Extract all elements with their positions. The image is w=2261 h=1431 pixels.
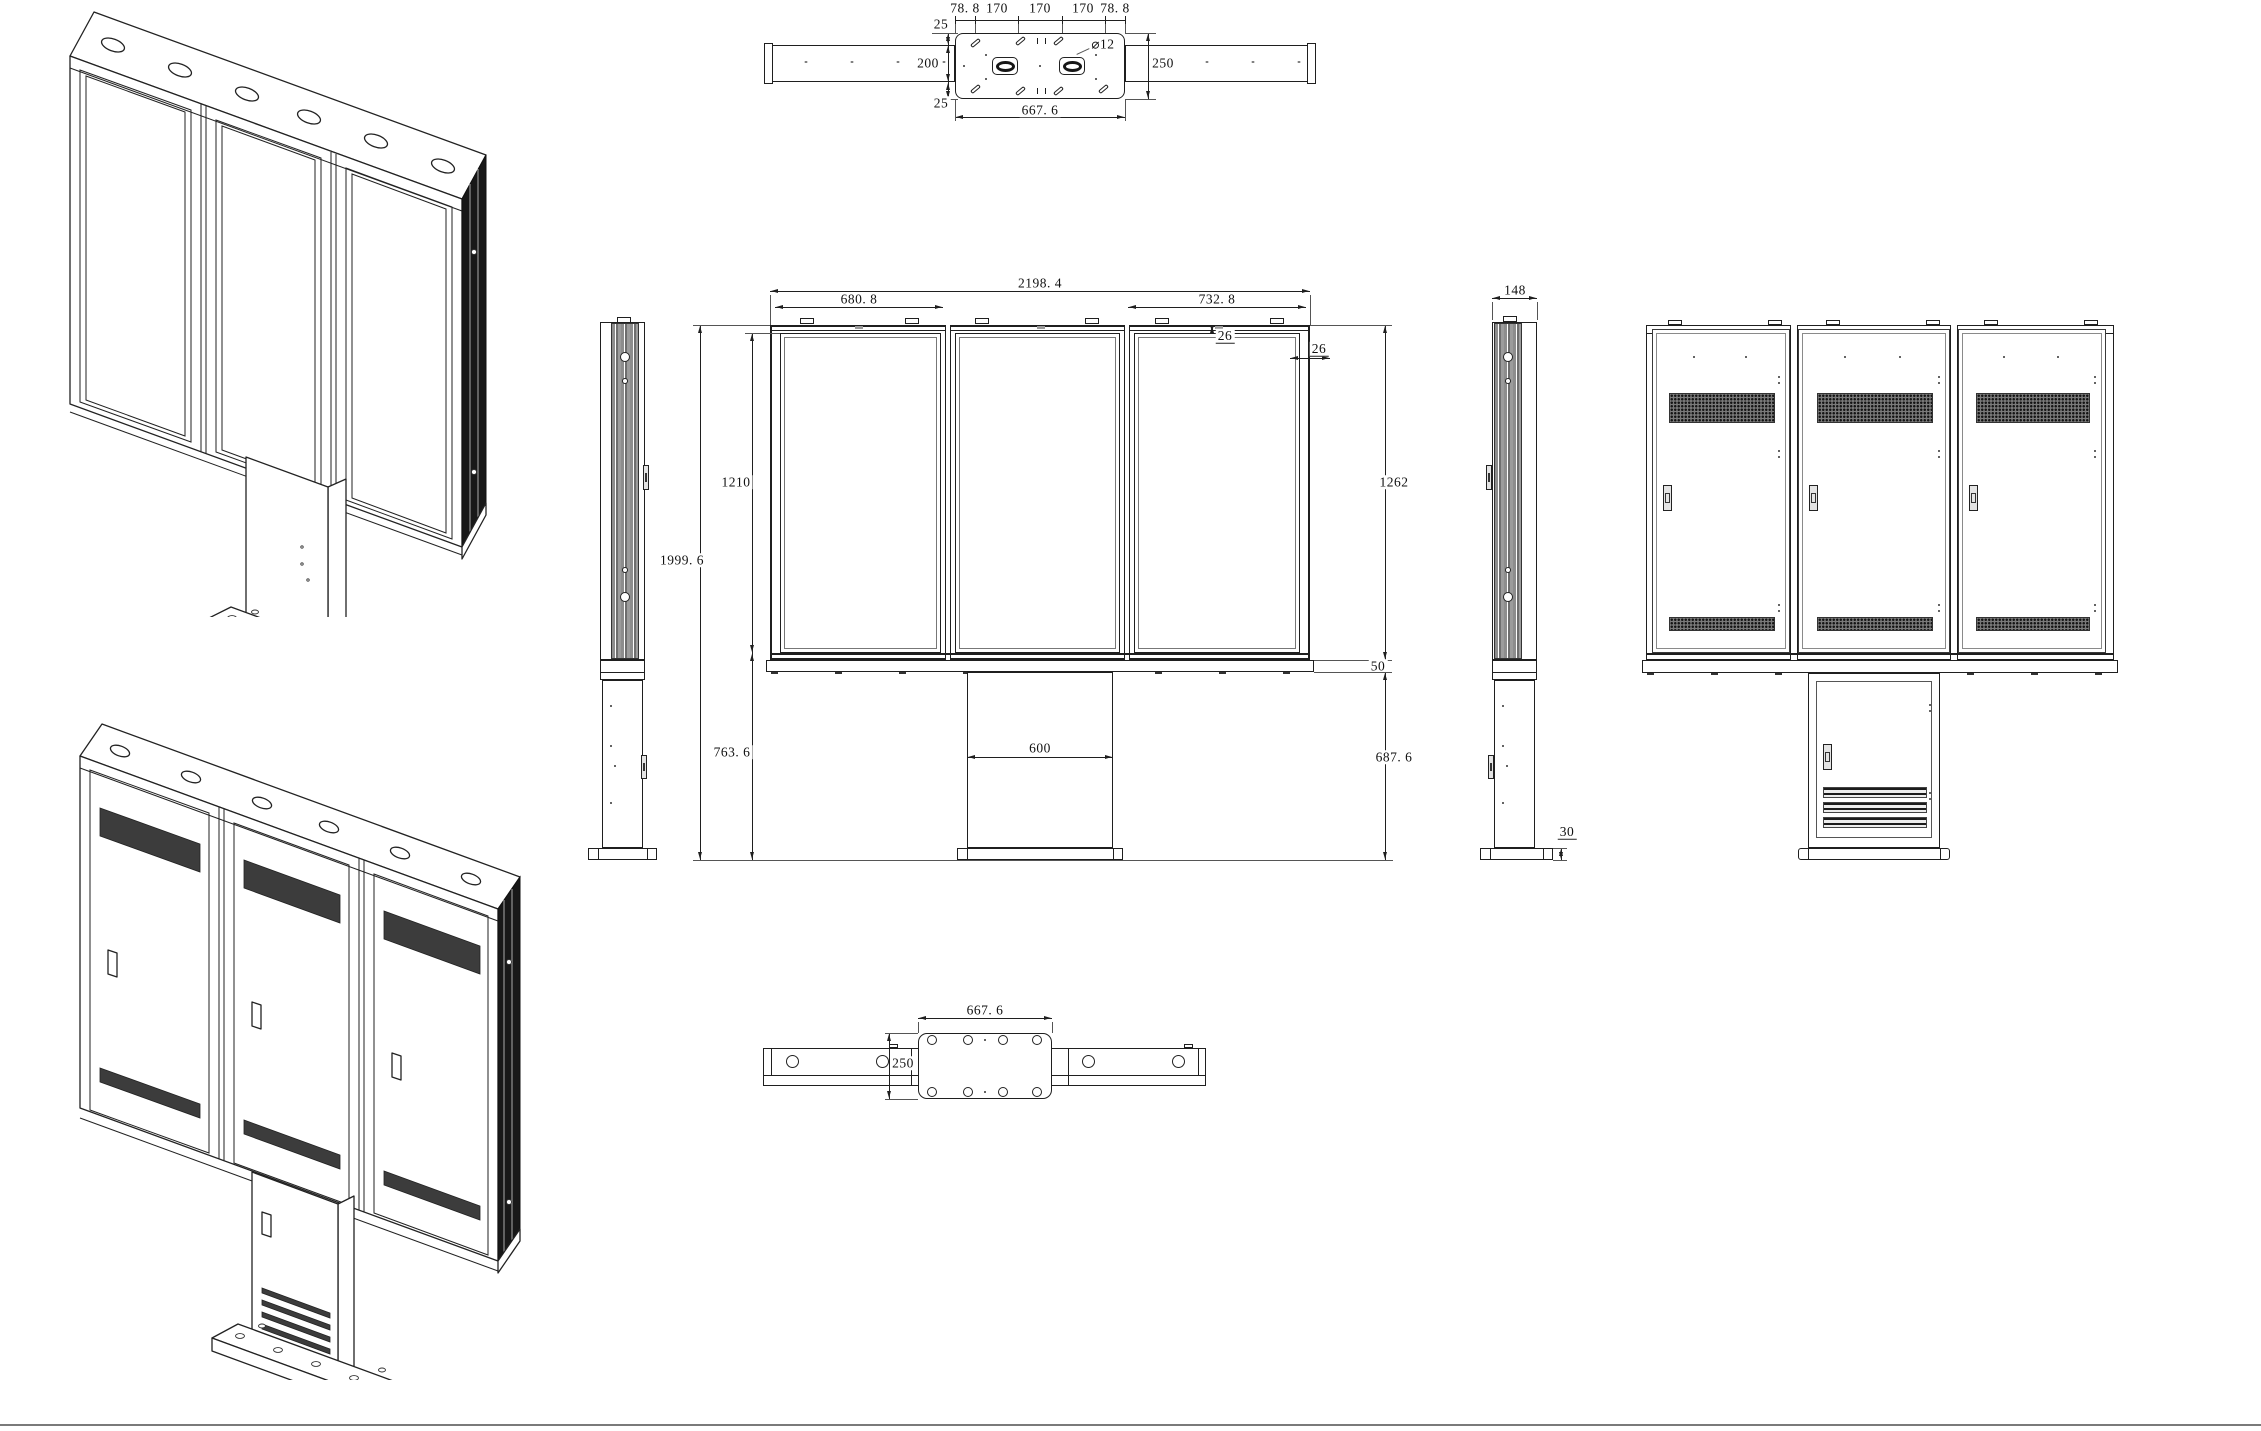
plate-dot: [985, 78, 987, 80]
iso-rear-door-latch-1: [108, 950, 117, 977]
rear-column-louver: [1823, 802, 1927, 813]
base-notch: [598, 848, 599, 860]
iso-front-heatsink-hole: [472, 470, 477, 475]
rear-top-tab: [1768, 320, 1782, 325]
panel-top-tab: [1155, 318, 1169, 324]
iso-rear-base-hole: [379, 1368, 386, 1372]
side-hole: [1503, 352, 1513, 362]
iso-front-column-dot: [307, 579, 309, 581]
ext-line: [1125, 24, 1126, 33]
dim-base-height: 30: [1558, 825, 1577, 840]
side-column: [1494, 680, 1535, 848]
dim-line-side-margin: [1290, 358, 1330, 359]
bar-hole: [876, 1055, 889, 1068]
base-notch: [1940, 848, 1941, 860]
top-view: 78. 8 170 170 170 78. 8 25 200 25 250 66…: [760, 0, 1340, 140]
hinge-dot: [2094, 376, 2096, 378]
rear-mullion-2: [1950, 325, 1958, 660]
column-dot: [1506, 765, 1508, 767]
ext-line: [1018, 24, 1019, 33]
dim-line-plate-width: [918, 1018, 1052, 1019]
plate-dot: [1095, 78, 1097, 80]
panel-mullion-1: [945, 325, 951, 660]
plate-dot: [963, 65, 965, 67]
sheet-border-line: [0, 1424, 2261, 1426]
stand-base: [957, 848, 1123, 860]
side-latch: [643, 465, 649, 490]
rear-door-2: [1798, 329, 1950, 653]
iso-rear-column-latch: [262, 1212, 271, 1237]
panel-top-tab: [1270, 318, 1284, 324]
plate-hole: [1032, 1087, 1042, 1097]
dim-lower-height: 763. 6: [712, 745, 753, 759]
cabinet-bottom-rail: [770, 653, 1310, 655]
door-dot: [1745, 356, 1747, 358]
panel-top-tab: [1085, 318, 1099, 324]
side-ledge-line: [600, 672, 645, 673]
bar-hole: [1172, 1055, 1185, 1068]
rear-stand-base: [1798, 848, 1950, 860]
dim-line-left-panel: [775, 307, 943, 308]
hinge-dot: [1778, 456, 1780, 458]
hinge-dot: [1778, 450, 1780, 452]
side-ledge-band: [600, 660, 645, 680]
ext-line: [1125, 99, 1156, 100]
rear-stand-column: [1808, 673, 1940, 848]
plate-hole: [927, 1087, 937, 1097]
side-ledge-band: [1492, 660, 1537, 680]
plate-dot: [984, 1039, 986, 1041]
panel-top-clip: [1037, 326, 1045, 329]
ext-line: [975, 24, 976, 33]
side-heatsink-fins: [1494, 323, 1522, 659]
column-dot: [614, 765, 616, 767]
ground-ext-line: [693, 860, 1393, 861]
iso-front-heatsink-end: [462, 155, 486, 547]
ext-line: [1553, 860, 1567, 861]
door-dot: [2003, 356, 2005, 358]
dim-stand-height: 687. 6: [1374, 750, 1415, 764]
rear-mullion-1: [1790, 325, 1798, 660]
dim-line-column-width: [967, 757, 1113, 758]
rear-door-3: [1958, 329, 2106, 653]
dim-plate-width: 667. 6: [965, 1003, 1006, 1017]
panel-top-tab: [975, 318, 989, 324]
top-bar-endcap-left: [764, 43, 773, 84]
bottom-bar-endline: [771, 1048, 772, 1075]
door-dot: [1844, 356, 1846, 358]
iso-rear-door-latch-3: [392, 1053, 401, 1080]
ext-line: [1492, 302, 1493, 320]
plate-dot: [985, 54, 987, 56]
panel-top-tab: [905, 318, 919, 324]
iso-front-column-side: [328, 479, 346, 617]
hinge-dot: [2094, 450, 2096, 452]
base-notch: [1808, 848, 1809, 860]
dim-plate-depth: 250: [1150, 56, 1176, 70]
door-dot: [1693, 356, 1695, 358]
base-notch: [647, 848, 648, 860]
dim-tick: [955, 16, 956, 24]
column-dot: [610, 802, 612, 804]
screen-panel-1: [780, 333, 941, 653]
screen-panel-2: [955, 333, 1120, 653]
ext-line: [693, 325, 770, 326]
bottom-bar-divider: [1068, 1048, 1069, 1086]
ext-line: [885, 1099, 918, 1100]
hinge-dot: [1929, 798, 1931, 800]
dim-line-right-panel: [1128, 307, 1306, 308]
iso-front-heatsink-hole: [472, 250, 477, 255]
side-ledge-line: [1492, 672, 1537, 673]
column-dot: [1502, 745, 1504, 747]
dim-line-overall-height: [700, 325, 701, 860]
ext-line: [1310, 295, 1311, 325]
plate-dot: [1039, 65, 1041, 67]
hinge-dot: [1938, 610, 1940, 612]
door-top-vent: [1976, 393, 2090, 423]
hinge-dot: [1778, 376, 1780, 378]
dim-hole-dia: ⌀12: [1089, 37, 1116, 51]
bar-hole: [786, 1055, 799, 1068]
hinge-dot: [1938, 376, 1940, 378]
iso-rear-heatsink-hole: [507, 960, 512, 965]
base-notch: [1543, 848, 1544, 860]
iso-rear-base-hole: [350, 1376, 359, 1380]
base-notch: [1490, 848, 1491, 860]
base-notch: [1113, 848, 1114, 860]
ext-line: [1052, 1022, 1053, 1033]
ext-line: [932, 33, 958, 34]
dim-tick: [1125, 16, 1126, 24]
ext-line: [1105, 24, 1106, 33]
bottom-bar-bump: [1184, 1044, 1193, 1048]
hinge-dot: [1778, 610, 1780, 612]
iso-front-base-hole: [228, 616, 237, 617]
panel-top-clip: [855, 326, 863, 329]
iso-front-column-dot: [301, 563, 303, 565]
hinge-dot: [1938, 456, 1940, 458]
dim-line-top-margin: [1212, 325, 1213, 333]
side-heatsink-fins: [611, 323, 639, 659]
screen-panel-3: [1134, 333, 1300, 653]
side-hole: [620, 352, 630, 362]
top-bar-endcap-right: [1307, 43, 1316, 84]
side-hole: [1503, 592, 1513, 602]
iso-rear-base-hole: [274, 1348, 283, 1353]
column-dot: [1502, 802, 1504, 804]
dim-spacing-2: 170: [984, 1, 1010, 15]
stand-column: [967, 672, 1113, 848]
ext-line: [1314, 672, 1392, 673]
plate-hole: [998, 1087, 1008, 1097]
side-hole: [1505, 378, 1511, 384]
dim-line-plate-depth: [1148, 33, 1149, 99]
column-dot: [610, 705, 612, 707]
column-latch: [641, 755, 647, 779]
ext-line: [1062, 24, 1063, 33]
rear-column-louver: [1823, 817, 1927, 828]
bottom-bar-bump: [889, 1044, 898, 1048]
iso-rear-heatsink-hole: [507, 1200, 512, 1205]
dim-spacing-3: 170: [1027, 1, 1053, 15]
dim-cabinet-height: 1262: [1378, 475, 1411, 489]
dim-overall-height: 1999. 6: [658, 553, 706, 567]
iso-rear-column-side: [338, 1196, 354, 1374]
door-bottom-vent: [1817, 617, 1933, 631]
ext-line: [918, 1022, 919, 1033]
dim-top-margin: 26: [1216, 329, 1235, 344]
hinge-dot: [2094, 456, 2096, 458]
dim-line-stand-height: [1385, 672, 1386, 860]
column-dot: [610, 745, 612, 747]
dim-inner-depth: 200: [915, 56, 941, 70]
hinge-dot: [1938, 450, 1940, 452]
ext-line: [885, 1033, 918, 1034]
side-hole: [1505, 567, 1511, 573]
bottom-ledge: [766, 660, 1314, 672]
iso-rear-base-hole: [259, 1324, 266, 1328]
top-mid-tick: [1037, 88, 1038, 94]
ext-line: [1553, 848, 1567, 849]
ext-line: [1537, 302, 1538, 320]
door-bottom-vent: [1669, 617, 1775, 631]
plate-dot: [984, 1091, 986, 1093]
rear-top-tab: [1826, 320, 1840, 325]
iso-front-base-hole: [252, 610, 259, 614]
panel-top-tab: [800, 318, 814, 324]
dim-line-cabinet-height: [1385, 325, 1386, 660]
dim-plate-depth: 250: [890, 1056, 916, 1070]
plate-dot: [1095, 54, 1097, 56]
hinge-dot: [1929, 710, 1931, 712]
rear-bottom-ledge: [1642, 660, 2118, 673]
iso-rear-door-latch-2: [252, 1002, 261, 1029]
side-hole: [622, 567, 628, 573]
hinge-dot: [1938, 382, 1940, 384]
side-latch: [1486, 465, 1492, 490]
dim-tick: [1105, 16, 1106, 24]
top-mid-tick: [1045, 88, 1046, 94]
front-view: 2198. 4 680. 8 732. 8 26 26 1210 763. 6 …: [680, 270, 1410, 875]
hinge-dot: [1929, 792, 1931, 794]
hinge-dot: [1929, 704, 1931, 706]
door-dot: [2057, 356, 2059, 358]
plate-hole: [927, 1035, 937, 1045]
column-latch: [1488, 755, 1494, 779]
dim-tick: [1018, 16, 1019, 24]
dim-left-panel: 680. 8: [839, 292, 880, 306]
plate-hole: [963, 1087, 973, 1097]
top-mid-tick: [1037, 38, 1038, 44]
ext-line: [1310, 325, 1392, 326]
plate-hole: [1032, 1035, 1042, 1045]
rear-column-latch: [1823, 744, 1832, 770]
rear-column-louver: [1823, 787, 1927, 798]
ext-line: [745, 333, 780, 334]
dim-overall-width: 2198. 4: [1016, 276, 1064, 290]
rear-bottom-rail: [1646, 653, 2114, 655]
door-top-vent: [1669, 393, 1775, 423]
dim-plate-width: 667. 6: [1020, 103, 1061, 117]
dim-margin-bot: 25: [932, 96, 951, 110]
rear-top-tab: [1926, 320, 1940, 325]
dim-line-inner-depth: [948, 45, 949, 82]
rear-column-door: [1816, 681, 1932, 838]
rear-door-1: [1652, 329, 1790, 653]
ext-line: [1125, 33, 1156, 34]
bottom-bar-endline: [1198, 1048, 1199, 1075]
column-dot: [1502, 705, 1504, 707]
side-hole: [622, 378, 628, 384]
dim-side-margin: 26: [1310, 342, 1329, 357]
dim-margin-top: 25: [932, 17, 951, 31]
dim-line-screen-height: [752, 333, 753, 653]
dim-spacing-5: 78. 8: [1098, 1, 1132, 15]
rear-top-tab: [1668, 320, 1682, 325]
dim-right-panel: 732. 8: [1197, 292, 1238, 306]
rear-top-tab: [1984, 320, 1998, 325]
door-bottom-vent: [1976, 617, 2090, 631]
iso-front-column-dot: [301, 546, 303, 548]
iso-rear-base-hole: [236, 1334, 245, 1339]
dim-line-base-height: [1561, 848, 1562, 860]
bar-hole: [1082, 1055, 1095, 1068]
hinge-dot: [1938, 604, 1940, 606]
dim-tick: [1062, 16, 1063, 24]
dim-spacing-1: 78. 8: [948, 1, 982, 15]
ext-line: [955, 99, 956, 121]
left-side-view: [585, 310, 665, 870]
side-hole: [620, 592, 630, 602]
top-grommet-left: [992, 57, 1018, 75]
dim-line-depth: [1492, 298, 1537, 299]
hinge-dot: [1778, 604, 1780, 606]
hinge-dot: [2094, 610, 2096, 612]
hinge-dot: [2094, 604, 2096, 606]
dim-spacing-4: 170: [1070, 1, 1096, 15]
hinge-dot: [2094, 382, 2096, 384]
right-side-view: 148 30: [1475, 280, 1585, 870]
dim-depth: 148: [1502, 283, 1528, 297]
rear-view: [1636, 312, 2136, 872]
bottom-view: 667. 6 250: [750, 1000, 1230, 1120]
door-latch: [1809, 485, 1818, 511]
ext-line: [1125, 99, 1126, 121]
iso-rear-base-hole: [312, 1362, 321, 1367]
door-latch: [1663, 485, 1672, 511]
dim-tick: [975, 16, 976, 24]
side-column: [602, 680, 643, 848]
door-latch: [1969, 485, 1978, 511]
dim-line-spacing: [955, 20, 1125, 21]
top-grommet-right: [1059, 57, 1085, 75]
dim-screen-height: 1210: [720, 475, 753, 489]
iso-front-view: [40, 2, 550, 617]
hinge-dot: [1778, 382, 1780, 384]
dim-column-width: 600: [1027, 741, 1053, 755]
ext-line: [955, 24, 956, 33]
panel-mullion-2: [1124, 325, 1130, 660]
base-notch: [967, 848, 968, 860]
ext-line: [770, 295, 771, 325]
iso-rear-view: [52, 712, 572, 1380]
top-mid-tick: [1045, 38, 1046, 44]
rear-top-tab: [2084, 320, 2098, 325]
drawing-sheet: 78. 8 170 170 170 78. 8 25 200 25 250 66…: [0, 0, 2261, 1431]
door-dot: [1899, 356, 1901, 358]
door-top-vent: [1817, 393, 1933, 423]
plate-hole: [998, 1035, 1008, 1045]
plate-hole: [963, 1035, 973, 1045]
